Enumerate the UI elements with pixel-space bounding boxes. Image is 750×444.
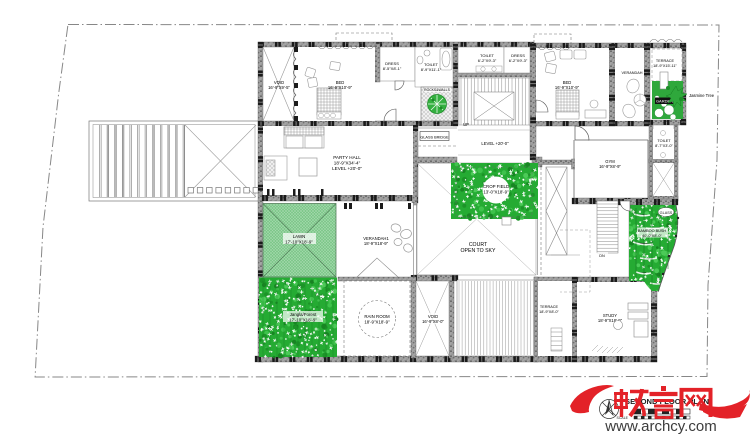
svg-text:LEVEL +20'-0": LEVEL +20'-0" — [481, 141, 509, 146]
svg-text:LAWN: LAWN — [293, 234, 306, 239]
svg-text:16'-9"X10'-9": 16'-9"X10'-9" — [555, 85, 580, 90]
svg-text:Jangla/Forest: Jangla/Forest — [290, 312, 317, 317]
svg-text:RAIN ROOM: RAIN ROOM — [364, 314, 390, 319]
svg-text:16'-9"X10'-9": 16'-9"X10'-9" — [328, 85, 353, 90]
svg-text:18'-9"X18'-9": 18'-9"X18'-9" — [364, 319, 390, 324]
svg-text:OPEN TO SKY: OPEN TO SKY — [461, 248, 497, 254]
svg-text:www.archcy.com: www.archcy.com — [604, 418, 716, 435]
svg-text:GLASS: GLASS — [660, 211, 673, 215]
svg-text:17'-10"X18'-9": 17'-10"X18'-9" — [285, 239, 313, 244]
svg-text:TERRACE: TERRACE — [540, 305, 559, 309]
svg-text:CROP FIELD: CROP FIELD — [483, 184, 509, 189]
svg-text:8'-5"X8'-1": 8'-5"X8'-1" — [383, 66, 402, 71]
svg-text:BAMBOO BUSH: BAMBOO BUSH — [638, 229, 667, 233]
svg-text:8'-7"X3'-0": 8'-7"X3'-0" — [655, 144, 673, 148]
svg-text:Jasmine Tree: Jasmine Tree — [689, 93, 715, 98]
svg-text:16'-9"X9'-5": 16'-9"X9'-5" — [268, 85, 290, 90]
svg-text:18'-9"X15'-11": 18'-9"X15'-11" — [653, 64, 677, 68]
svg-text:TERRACE: TERRACE — [656, 59, 675, 63]
svg-text:TOILET: TOILET — [657, 139, 671, 143]
svg-text:13'-0"X18'-9": 13'-0"X18'-9" — [483, 189, 509, 194]
svg-text:40'-0"X8'-0": 40'-0"X8'-0" — [642, 234, 662, 238]
svg-text:LEVEL +20'-0": LEVEL +20'-0" — [332, 166, 362, 171]
svg-text:18'-9"X18'-9": 18'-9"X18'-9" — [364, 241, 389, 246]
svg-text:6'-2"X9'-3": 6'-2"X9'-3" — [478, 58, 497, 63]
svg-text:18'-9"X8'-0": 18'-9"X8'-0" — [539, 310, 559, 314]
svg-text:16'-9"X8'-0": 16'-9"X8'-0" — [422, 319, 444, 324]
svg-text:8'-9"X11'-1": 8'-9"X11'-1" — [421, 67, 442, 72]
svg-text:PARTY HALL: PARTY HALL — [333, 155, 361, 160]
svg-text:6'-2"X9'-3": 6'-2"X9'-3" — [509, 58, 528, 63]
svg-text:16'-9"X8'-9": 16'-9"X8'-9" — [599, 164, 621, 169]
svg-text:18'-9"X34'-4": 18'-9"X34'-4" — [334, 161, 361, 166]
svg-text:GLASS BRIDGE: GLASS BRIDGE — [420, 136, 449, 140]
svg-text:COURT: COURT — [469, 242, 488, 248]
svg-text:17'-10"X18'-9": 17'-10"X18'-9" — [289, 317, 317, 322]
svg-text:ROCKS&WALLS: ROCKS&WALLS — [424, 88, 450, 92]
svg-text:DN: DN — [599, 254, 605, 258]
svg-text:VERANDAH: VERANDAH — [621, 71, 642, 75]
svg-text:UP: UP — [463, 122, 469, 127]
